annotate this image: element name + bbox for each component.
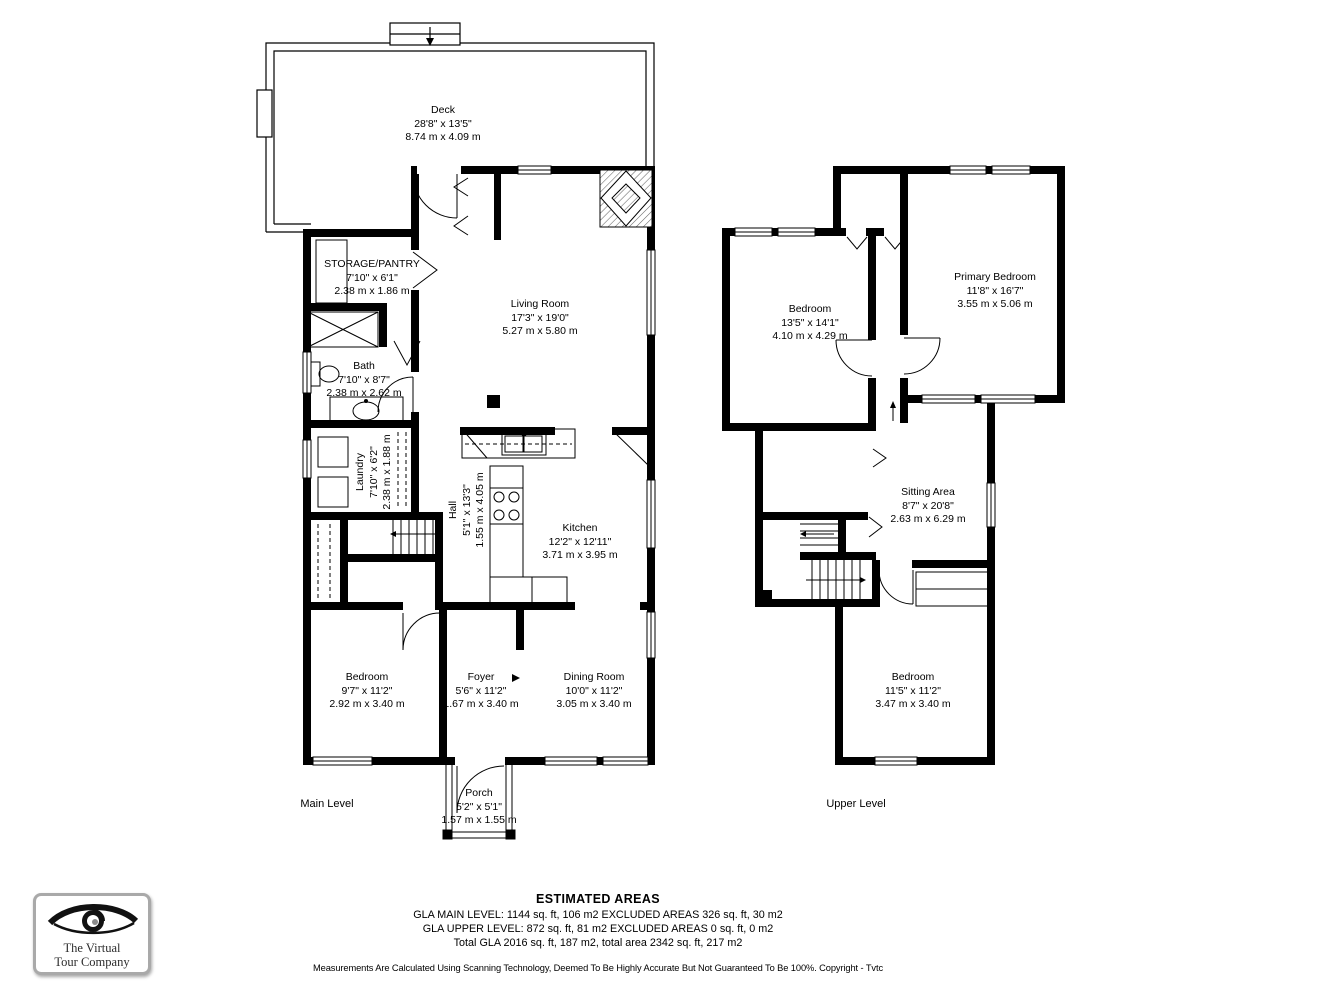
room-label-laundry: Laundry 7'10" x 6'2" 2.38 m x 1.88 m <box>354 434 395 509</box>
bedroom-closet <box>916 572 988 606</box>
room-dim-imperial: 8'7" x 20'8" <box>890 499 965 513</box>
room-label-primary-bedroom: Primary Bedroom 11'8" x 16'7" 3.55 m x 5… <box>954 271 1036 312</box>
room-dim-metric: 1.55 m x 4.05 m <box>474 472 488 547</box>
upper-stairs-icon <box>800 524 866 599</box>
room-label-bedroom-main: Bedroom 9'7" x 11'2" 2.92 m x 3.40 m <box>329 671 404 712</box>
room-dim-imperial: 28'8" x 13'5" <box>405 117 480 131</box>
gla-main-level-line: GLA MAIN LEVEL: 1144 sq. ft, 106 m2 EXCL… <box>313 908 883 922</box>
porch-post <box>443 830 452 839</box>
porch-post <box>506 830 515 839</box>
room-dim-metric: 2.38 m x 1.88 m <box>381 434 395 509</box>
room-label-hall: Hall 5'1" x 13'3" 1.55 m x 4.05 m <box>447 472 488 547</box>
room-dim-metric: 3.55 m x 5.06 m <box>954 298 1036 312</box>
room-dim-imperial: 7'10" x 6'2" <box>367 434 381 509</box>
room-dim-metric: 4.10 m x 4.29 m <box>772 330 847 344</box>
room-name: STORAGE/PANTRY <box>324 258 420 272</box>
upper-level-label: Upper Level <box>826 798 885 810</box>
total-gla-line: Total GLA 2016 sq. ft, 187 m2, total are… <box>313 936 883 950</box>
room-name: Dining Room <box>556 671 631 685</box>
room-dim-metric: 2.63 m x 6.29 m <box>890 513 965 527</box>
room-name: Hall <box>447 472 461 547</box>
room-dim-imperial: 7'10" x 6'1" <box>324 271 420 285</box>
room-name: Living Room <box>502 298 577 312</box>
logo-text-line2: Tour Company <box>36 956 148 970</box>
room-dim-metric: 2.38 m x 2.62 m <box>326 387 401 401</box>
bathtub-icon <box>308 312 378 347</box>
room-name: Primary Bedroom <box>954 271 1036 285</box>
room-label-dining-room: Dining Room 10'0" x 11'2" 3.05 m x 3.40 … <box>556 671 631 712</box>
room-dim-imperial: 10'0" x 11'2" <box>556 684 631 698</box>
room-dim-imperial: 5'6" x 11'2" <box>443 684 518 698</box>
logo-text-line1: The Virtual <box>36 942 148 956</box>
room-dim-imperial: 11'8" x 16'7" <box>954 284 1036 298</box>
measurement-disclaimer: Measurements Are Calculated Using Scanni… <box>313 963 883 973</box>
room-name: Porch <box>441 787 516 801</box>
stove-burners-icon <box>490 466 523 524</box>
stove-hatch-icon <box>600 170 652 227</box>
washer-dryer-icon <box>318 437 348 507</box>
room-dim-imperial: 12'2" x 12'11" <box>542 535 617 549</box>
virtual-tour-company-logo: The Virtual Tour Company <box>33 893 151 975</box>
room-dim-metric: 1.67 m x 3.40 m <box>443 698 518 712</box>
room-name: Bedroom <box>772 303 847 317</box>
room-label-deck: Deck 28'8" x 13'5" 8.74 m x 4.09 m <box>405 104 480 145</box>
upper-doors <box>836 237 940 604</box>
room-dim-metric: 1.57 m x 1.55 m <box>441 814 516 828</box>
room-label-bedroom-upper-bottom: Bedroom 11'5" x 11'2" 3.47 m x 3.40 m <box>875 671 950 712</box>
room-name: Foyer <box>443 671 518 685</box>
room-dim-imperial: 5'1" x 13'3" <box>460 472 474 547</box>
room-dim-imperial: 5'2" x 5'1" <box>441 800 516 814</box>
room-dim-metric: 8.74 m x 4.09 m <box>405 131 480 145</box>
room-dim-metric: 3.71 m x 3.95 m <box>542 549 617 563</box>
room-name: Kitchen <box>542 522 617 536</box>
room-name: Bath <box>326 360 401 374</box>
post <box>487 395 500 408</box>
room-name: Bedroom <box>875 671 950 685</box>
room-label-kitchen: Kitchen 12'2" x 12'11" 3.71 m x 3.95 m <box>542 522 617 563</box>
room-dim-metric: 2.38 m x 1.86 m <box>324 285 420 299</box>
floor-plan-linework <box>0 0 1333 1000</box>
eye-icon <box>42 898 142 936</box>
room-dim-imperial: 9'7" x 11'2" <box>329 684 404 698</box>
room-name: Laundry <box>354 434 368 509</box>
room-dim-imperial: 7'10" x 8'7" <box>326 373 401 387</box>
room-dim-imperial: 13'5" x 14'1" <box>772 316 847 330</box>
room-name: Sitting Area <box>890 486 965 500</box>
estimated-areas-block: ESTIMATED AREAS GLA MAIN LEVEL: 1144 sq.… <box>313 892 883 973</box>
room-dim-metric: 3.47 m x 3.40 m <box>875 698 950 712</box>
room-dim-imperial: 11'5" x 11'2" <box>875 684 950 698</box>
room-dim-imperial: 17'3" x 19'0" <box>502 311 577 325</box>
room-dim-metric: 5.27 m x 5.80 m <box>502 325 577 339</box>
room-label-foyer: Foyer 5'6" x 11'2" 1.67 m x 3.40 m <box>443 671 518 712</box>
main-level-label: Main Level <box>300 798 353 810</box>
room-label-bath: Bath 7'10" x 8'7" 2.38 m x 2.62 m <box>326 360 401 401</box>
floor-plan-page: Deck 28'8" x 13'5" 8.74 m x 4.09 m STORA… <box>0 0 1333 1000</box>
room-name: Bedroom <box>329 671 404 685</box>
estimated-areas-title: ESTIMATED AREAS <box>313 892 883 906</box>
room-dim-metric: 3.05 m x 3.40 m <box>556 698 631 712</box>
gla-upper-level-line: GLA UPPER LEVEL: 872 sq. ft, 81 m2 EXCLU… <box>313 922 883 936</box>
main-level-plan <box>257 23 655 839</box>
room-label-sitting-area: Sitting Area 8'7" x 20'8" 2.63 m x 6.29 … <box>890 486 965 527</box>
room-label-living-room: Living Room 17'3" x 19'0" 5.27 m x 5.80 … <box>502 298 577 339</box>
room-name: Deck <box>405 104 480 118</box>
room-label-porch: Porch 5'2" x 5'1" 1.57 m x 1.55 m <box>441 787 516 828</box>
room-label-bedroom-upper-left: Bedroom 13'5" x 14'1" 4.10 m x 4.29 m <box>772 303 847 344</box>
deck-side-step <box>257 90 272 137</box>
room-label-storage-pantry: STORAGE/PANTRY 7'10" x 6'1" 2.38 m x 1.8… <box>324 258 420 299</box>
room-dim-metric: 2.92 m x 3.40 m <box>329 698 404 712</box>
